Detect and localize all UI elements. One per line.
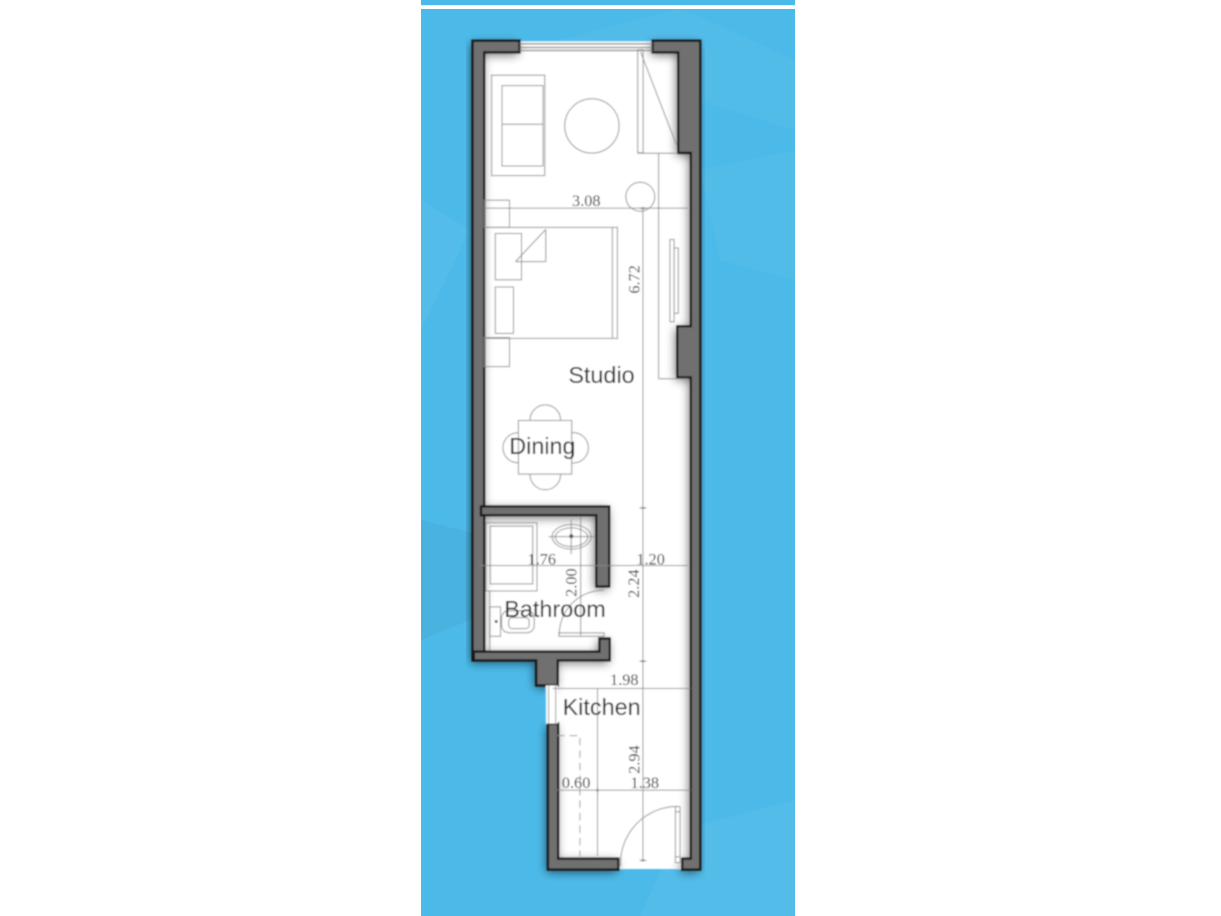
svg-text:2.94: 2.94 xyxy=(624,745,643,774)
svg-text:1.76: 1.76 xyxy=(528,549,557,568)
svg-text:2.00: 2.00 xyxy=(561,568,580,597)
svg-text:3.08: 3.08 xyxy=(572,191,601,210)
svg-text:Studio: Studio xyxy=(568,362,634,388)
svg-text:0.60: 0.60 xyxy=(562,773,591,792)
svg-text:1.98: 1.98 xyxy=(610,670,639,689)
svg-text:Bathroom: Bathroom xyxy=(504,596,605,622)
svg-text:6.72: 6.72 xyxy=(624,265,643,294)
svg-text:Kitchen: Kitchen xyxy=(563,694,641,720)
svg-text:1.38: 1.38 xyxy=(631,773,660,792)
svg-text:2.24: 2.24 xyxy=(624,569,643,598)
svg-text:1.20: 1.20 xyxy=(636,550,665,569)
svg-text:Dining: Dining xyxy=(509,433,575,459)
